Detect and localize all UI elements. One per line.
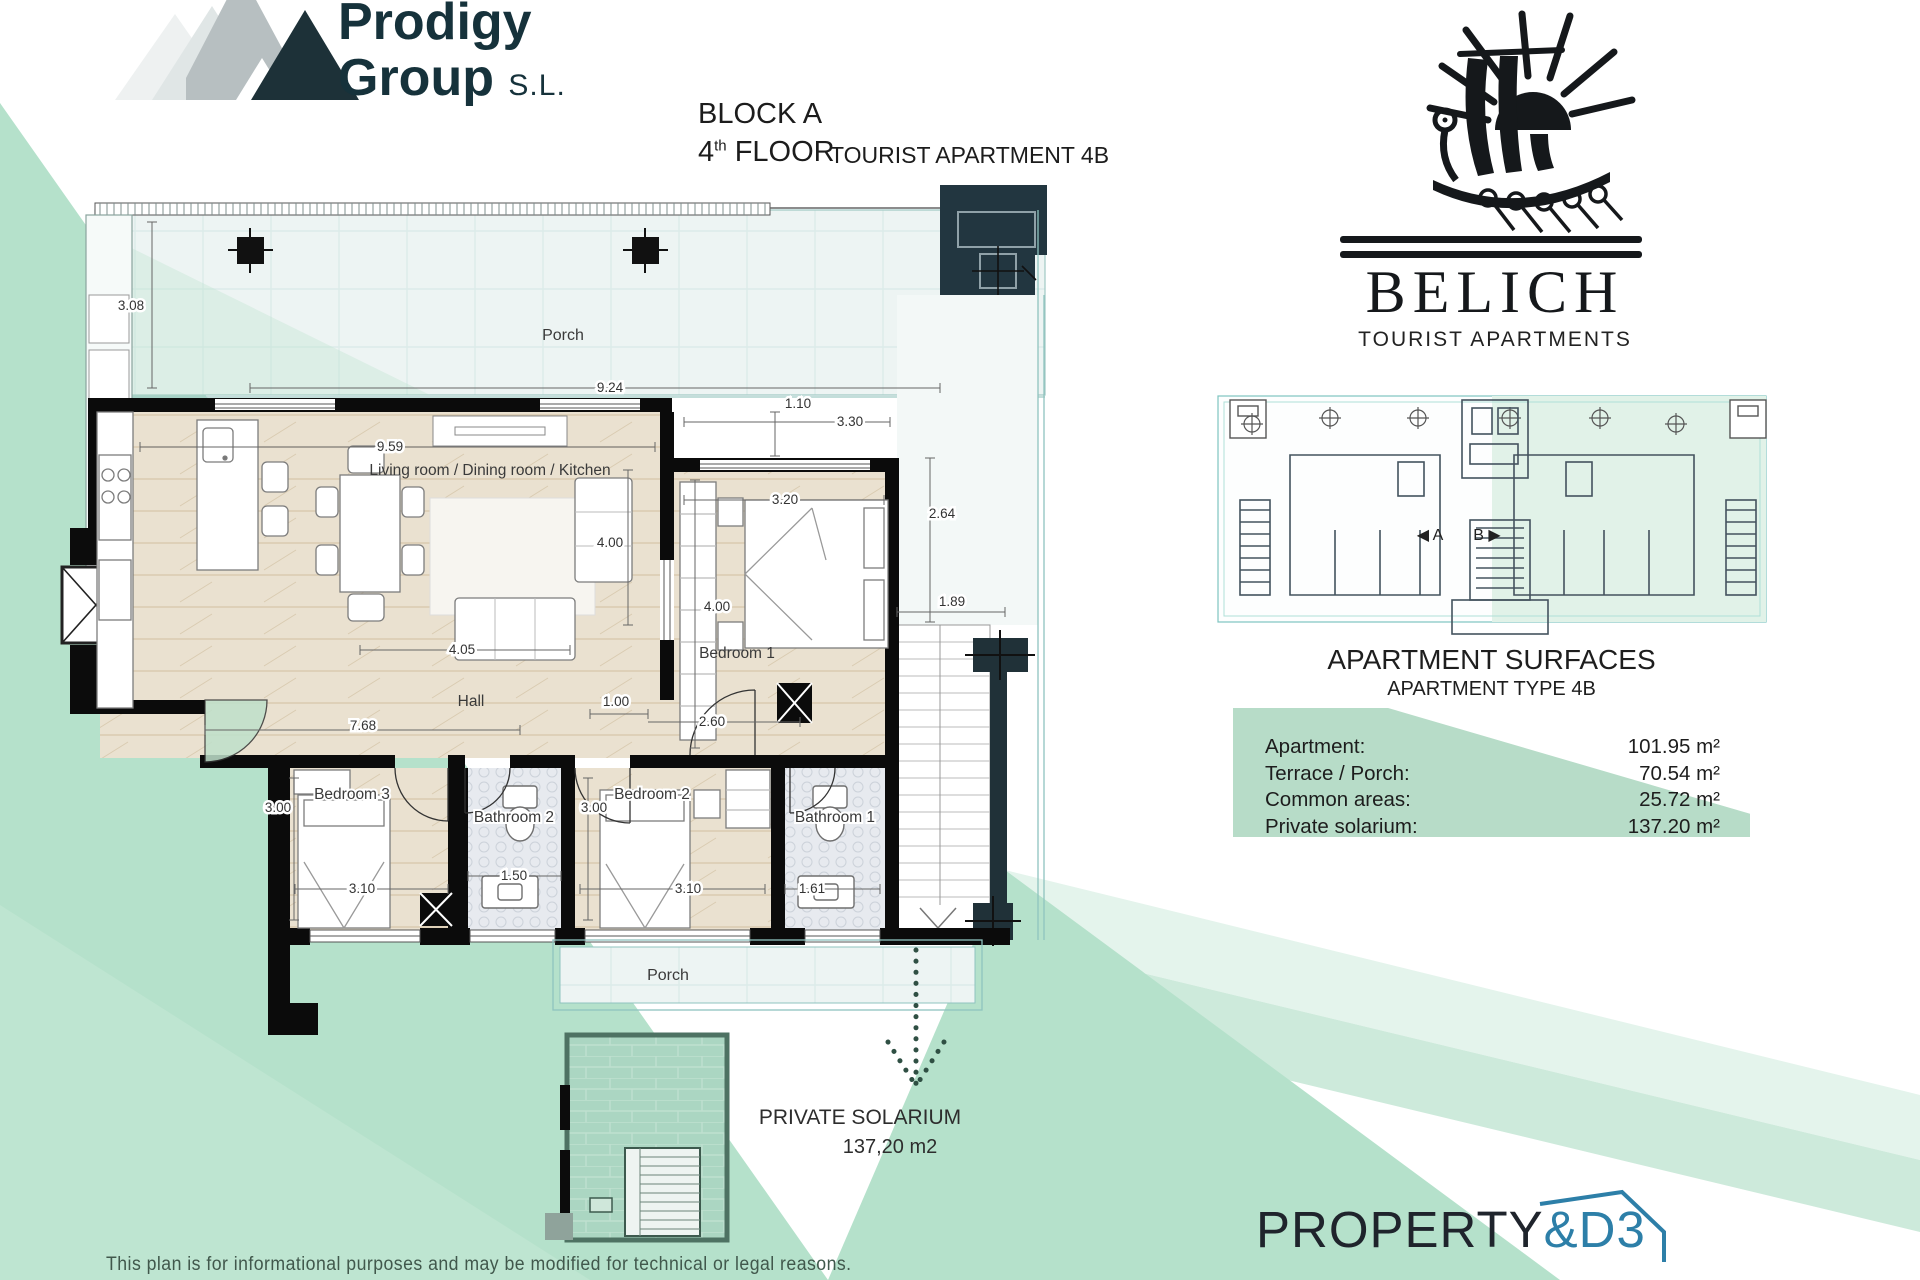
- dimension-label: 3.00: [265, 800, 291, 815]
- unit-b-label: B ▶: [1473, 527, 1501, 544]
- right-terrace: [890, 210, 1044, 946]
- room-label-porch-top: Porch: [542, 327, 584, 344]
- stool: [262, 462, 288, 492]
- surface-row: Common areas: 25.72 m²: [1233, 787, 1750, 814]
- prodigy-wordmark: Prodigy Group S.L.: [338, 0, 566, 114]
- surface-value: 137.20 m²: [1628, 814, 1720, 841]
- dimension-label: 2.60: [699, 714, 725, 729]
- surface-row: Terrace / Porch: 70.54 m²: [1233, 761, 1750, 788]
- disclaimer: This plan is for informational purposes …: [106, 1254, 852, 1276]
- dimension-label: 2.64: [929, 506, 956, 521]
- surfaces-title: APARTMENT SURFACES: [1233, 644, 1750, 676]
- dimension-label: 3.10: [675, 881, 701, 896]
- property-logo: PROPERTY&D3: [1256, 1200, 1646, 1259]
- floor-word: FLOOR: [727, 136, 835, 168]
- dimension-label: 3.08: [118, 298, 144, 313]
- prodigy-line2: Group: [338, 49, 508, 107]
- floor-title: 4th FLOOR: [698, 136, 835, 169]
- prodigy-suffix: S.L.: [508, 69, 565, 102]
- dimension-label: 1.61: [799, 881, 825, 896]
- room-label-hall: Hall: [458, 693, 485, 710]
- room-label-bedroom2: Bedroom 2: [614, 786, 690, 803]
- dimension-label: 1.50: [501, 868, 527, 883]
- surfaces-subtitle: APARTMENT TYPE 4B: [1233, 678, 1750, 701]
- stove-icon: [99, 455, 131, 540]
- surface-label: Common areas:: [1265, 787, 1411, 814]
- block-title: BLOCK A: [698, 98, 822, 131]
- surface-value: 101.95 m²: [1628, 734, 1720, 761]
- solarium-title: PRIVATE SOLARIUM: [700, 1106, 1020, 1130]
- sofa: [575, 478, 632, 582]
- sink-icon: [203, 428, 233, 462]
- property-name: PROPERTY: [1256, 1201, 1544, 1258]
- property-suffix: &D3: [1544, 1201, 1646, 1258]
- floor-ordinal: th: [714, 137, 727, 154]
- surface-label: Private solarium:: [1265, 814, 1418, 841]
- surface-row: Private solarium: 137.20 m²: [1233, 814, 1750, 841]
- prodigy-line1: Prodigy: [338, 0, 532, 51]
- surfaces-panel: Apartment: 101.95 m² Terrace / Porch: 70…: [1233, 708, 1750, 837]
- surface-label: Terrace / Porch:: [1265, 761, 1410, 788]
- room-label-bathroom1: Bathroom 1: [795, 809, 875, 826]
- tv-unit: [433, 416, 567, 446]
- floor-number: 4: [698, 136, 714, 168]
- surface-row: Apartment: 101.95 m²: [1233, 734, 1750, 761]
- stool: [262, 506, 288, 536]
- dimension-label: 3.30: [837, 414, 863, 429]
- prodigy-triangles-icon: [115, 0, 359, 100]
- surface-value: 70.54 m²: [1639, 761, 1720, 788]
- dimension-label: 7.68: [350, 718, 376, 733]
- dimension-label: 4.00: [704, 599, 730, 614]
- page: 3.08 9.24 9.59 1.10 3.30 3.20 2.64 4.00 …: [0, 0, 1920, 1280]
- ship-icon: [1340, 14, 1642, 258]
- overview-plan: ◀ A B ▶: [1218, 396, 1766, 634]
- wardrobe: [726, 770, 770, 828]
- belich-name: BELICH: [1270, 258, 1720, 327]
- dimension-label: 3.20: [772, 492, 798, 507]
- unit-a-label: ◀ A: [1417, 527, 1444, 544]
- surface-value: 25.72 m²: [1639, 787, 1720, 814]
- room-label-bedroom1: Bedroom 1: [699, 645, 775, 662]
- dimension-label: 4.05: [449, 642, 475, 657]
- dimension-label: 4.00: [597, 535, 623, 550]
- room-label-bedroom3: Bedroom 3: [314, 786, 390, 803]
- dimension-label: 3.00: [581, 800, 607, 815]
- solarium-stairs: [625, 1148, 700, 1236]
- dimension-label: 1.00: [603, 694, 629, 709]
- dimension-label: 1.89: [939, 594, 965, 609]
- dimension-label: 9.24: [597, 380, 624, 395]
- dimension-label: 3.10: [349, 881, 375, 896]
- floor-plan-drawing: 3.08 9.24 9.59 1.10 3.30 3.20 2.64 4.00 …: [0, 0, 1920, 1280]
- belich-subtitle: TOURIST APARTMENTS: [1270, 328, 1720, 352]
- dimension-label: 9.59: [377, 439, 403, 454]
- apartment-title: TOURIST APARTMENT 4B: [830, 142, 1109, 169]
- dimension-label: 1.10: [785, 396, 811, 411]
- room-label-bathroom2: Bathroom 2: [474, 809, 554, 826]
- room-label-living: Living room / Dining room / Kitchen: [369, 462, 610, 479]
- surface-label: Apartment:: [1265, 734, 1365, 761]
- toilet-icon: [503, 786, 537, 808]
- solarium-plan: [545, 1035, 727, 1240]
- porch-railing: [95, 203, 770, 215]
- service-core: [940, 185, 1047, 310]
- room-label-porch-bottom: Porch: [647, 967, 689, 984]
- solarium-area: 137,20 m2: [760, 1136, 1020, 1159]
